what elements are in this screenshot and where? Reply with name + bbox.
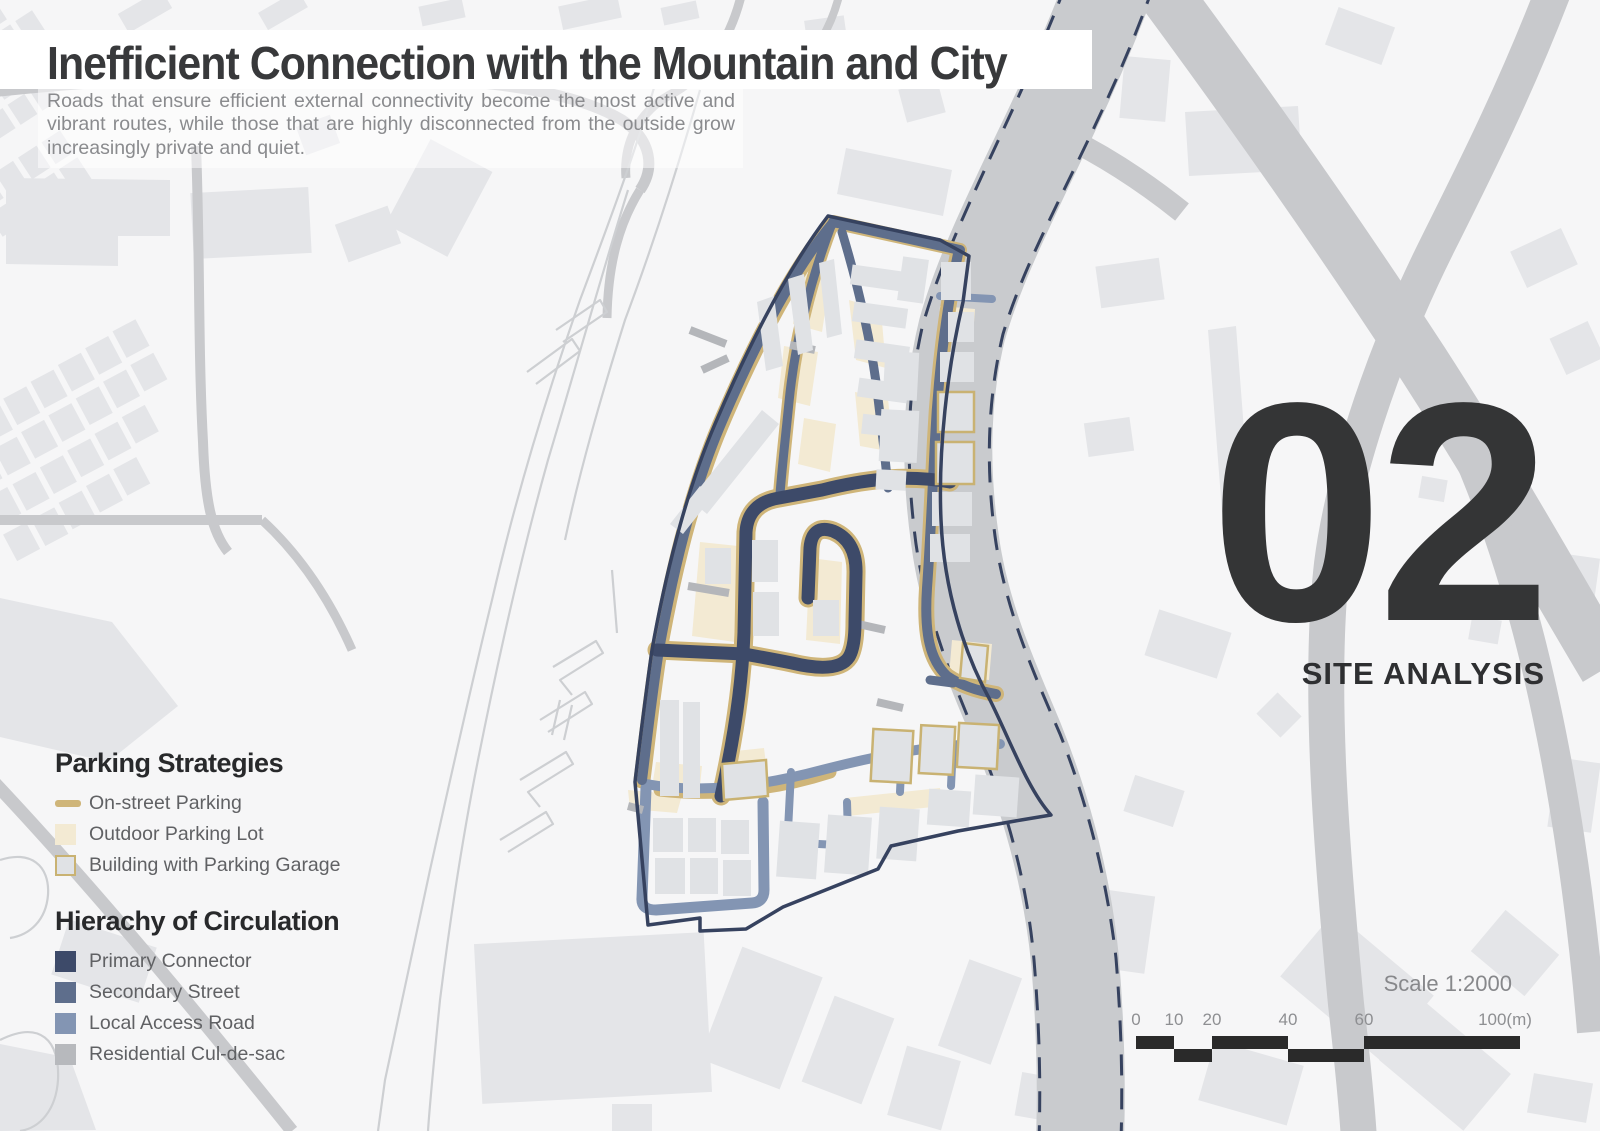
outdoor-parking-lot-swatch-icon [55, 824, 76, 845]
scale-tick: 100(m) [1478, 1010, 1532, 1030]
local-access-road-swatch-icon [55, 1013, 76, 1034]
secondary-street-swatch-icon [55, 982, 76, 1003]
poster-page: Inefficient Connection with the Mountain… [0, 0, 1600, 1131]
legend-item-label: Building with Parking Garage [89, 854, 340, 877]
scale-tick: 10 [1165, 1010, 1184, 1030]
scale-segment [1174, 1049, 1212, 1062]
page-title: Inefficient Connection with the Mountain… [47, 36, 1007, 90]
legend-item-parking-garage: Building with Parking Garage [55, 855, 415, 876]
legend-item-local-access-road: Local Access Road [55, 1013, 415, 1034]
legend-item-label: Residential Cul-de-sac [89, 1043, 285, 1066]
page-subtitle: Roads that ensure efficient external con… [47, 90, 735, 160]
legend-item-primary-connector: Primary Connector [55, 951, 415, 972]
scale-tick: 0 [1131, 1010, 1140, 1030]
scale-tick: 40 [1279, 1010, 1298, 1030]
legend-item-label: Outdoor Parking Lot [89, 823, 264, 846]
legend-item-outdoor-parking-lot: Outdoor Parking Lot [55, 824, 415, 845]
scale-segment [1212, 1036, 1288, 1049]
scale-bar: 0 10 20 40 60 100(m) [1128, 1036, 1528, 1076]
legend-item-label: Secondary Street [89, 981, 240, 1004]
scale-tick: 20 [1203, 1010, 1222, 1030]
residential-cul-de-sac-swatch-icon [55, 1044, 76, 1065]
legend-item-label: Primary Connector [89, 950, 252, 973]
subtitle-band: Roads that ensure efficient external con… [38, 88, 743, 168]
primary-connector-swatch-icon [55, 951, 76, 972]
scale-segment [1288, 1049, 1364, 1062]
legend-item-label: On-street Parking [89, 792, 242, 815]
scale-segment [1136, 1036, 1174, 1049]
scale-segment [1364, 1036, 1520, 1049]
legend-item-label: Local Access Road [89, 1012, 255, 1035]
section-number: 02 [1210, 386, 1545, 642]
parking-garage-swatch-icon [55, 855, 76, 876]
section-badge: 02 SITE ANALYSIS [1210, 386, 1545, 692]
scale-label: Scale 1:2000 [1384, 971, 1512, 997]
legend-parking-heading: Parking Strategies [55, 748, 415, 779]
legend: Parking Strategies On-street Parking Out… [55, 748, 415, 1075]
scale-tick: 60 [1355, 1010, 1374, 1030]
legend-circulation-heading: Hierachy of Circulation [55, 906, 415, 937]
legend-item-residential-cul-de-sac: Residential Cul-de-sac [55, 1044, 415, 1065]
legend-item-secondary-street: Secondary Street [55, 982, 415, 1003]
legend-item-onstreet-parking: On-street Parking [55, 793, 415, 814]
onstreet-parking-swatch-icon [55, 800, 81, 807]
